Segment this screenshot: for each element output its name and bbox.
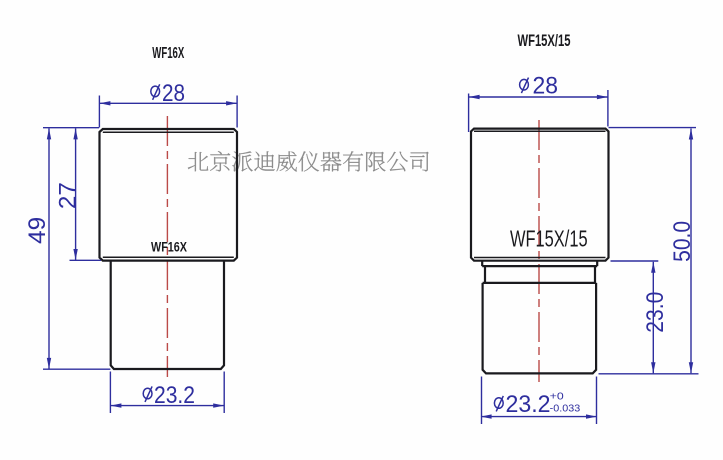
svg-text:WF16X: WF16X [151,239,187,254]
svg-text:23.2: 23.2 [506,391,551,418]
svg-text:WF16X: WF16X [152,45,184,62]
svg-text:-0.033: -0.033 [550,403,581,415]
svg-text:27: 27 [54,182,81,209]
svg-text:50.0: 50.0 [669,221,696,262]
svg-text:23.2: 23.2 [154,382,195,409]
svg-text:28: 28 [162,80,185,107]
svg-text:WF15X/15: WF15X/15 [518,31,571,50]
svg-text:49: 49 [24,217,51,244]
svg-text:28: 28 [533,73,559,100]
svg-text:WF15X/15: WF15X/15 [510,226,588,252]
svg-text:+0: +0 [550,390,564,402]
svg-text:23.0: 23.0 [642,292,669,333]
